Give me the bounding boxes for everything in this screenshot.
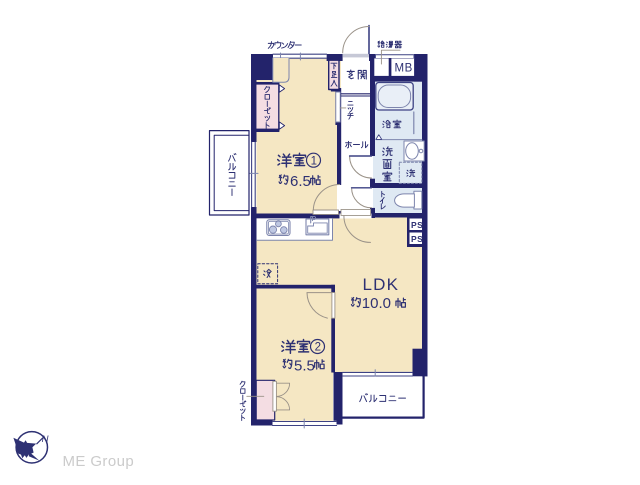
svg-text:ME Group: ME Group xyxy=(63,453,135,470)
svg-text:LDK: LDK xyxy=(363,275,400,294)
svg-text:MB: MB xyxy=(395,63,413,75)
svg-text:10.0: 10.0 xyxy=(362,295,391,312)
svg-text:N: N xyxy=(42,434,49,445)
svg-text:1: 1 xyxy=(311,155,317,167)
svg-text:PS: PS xyxy=(411,220,423,230)
svg-text:6.5: 6.5 xyxy=(290,173,311,190)
svg-text:2: 2 xyxy=(315,342,321,354)
svg-text:5.5: 5.5 xyxy=(294,358,315,375)
svg-text:PS: PS xyxy=(411,234,423,244)
